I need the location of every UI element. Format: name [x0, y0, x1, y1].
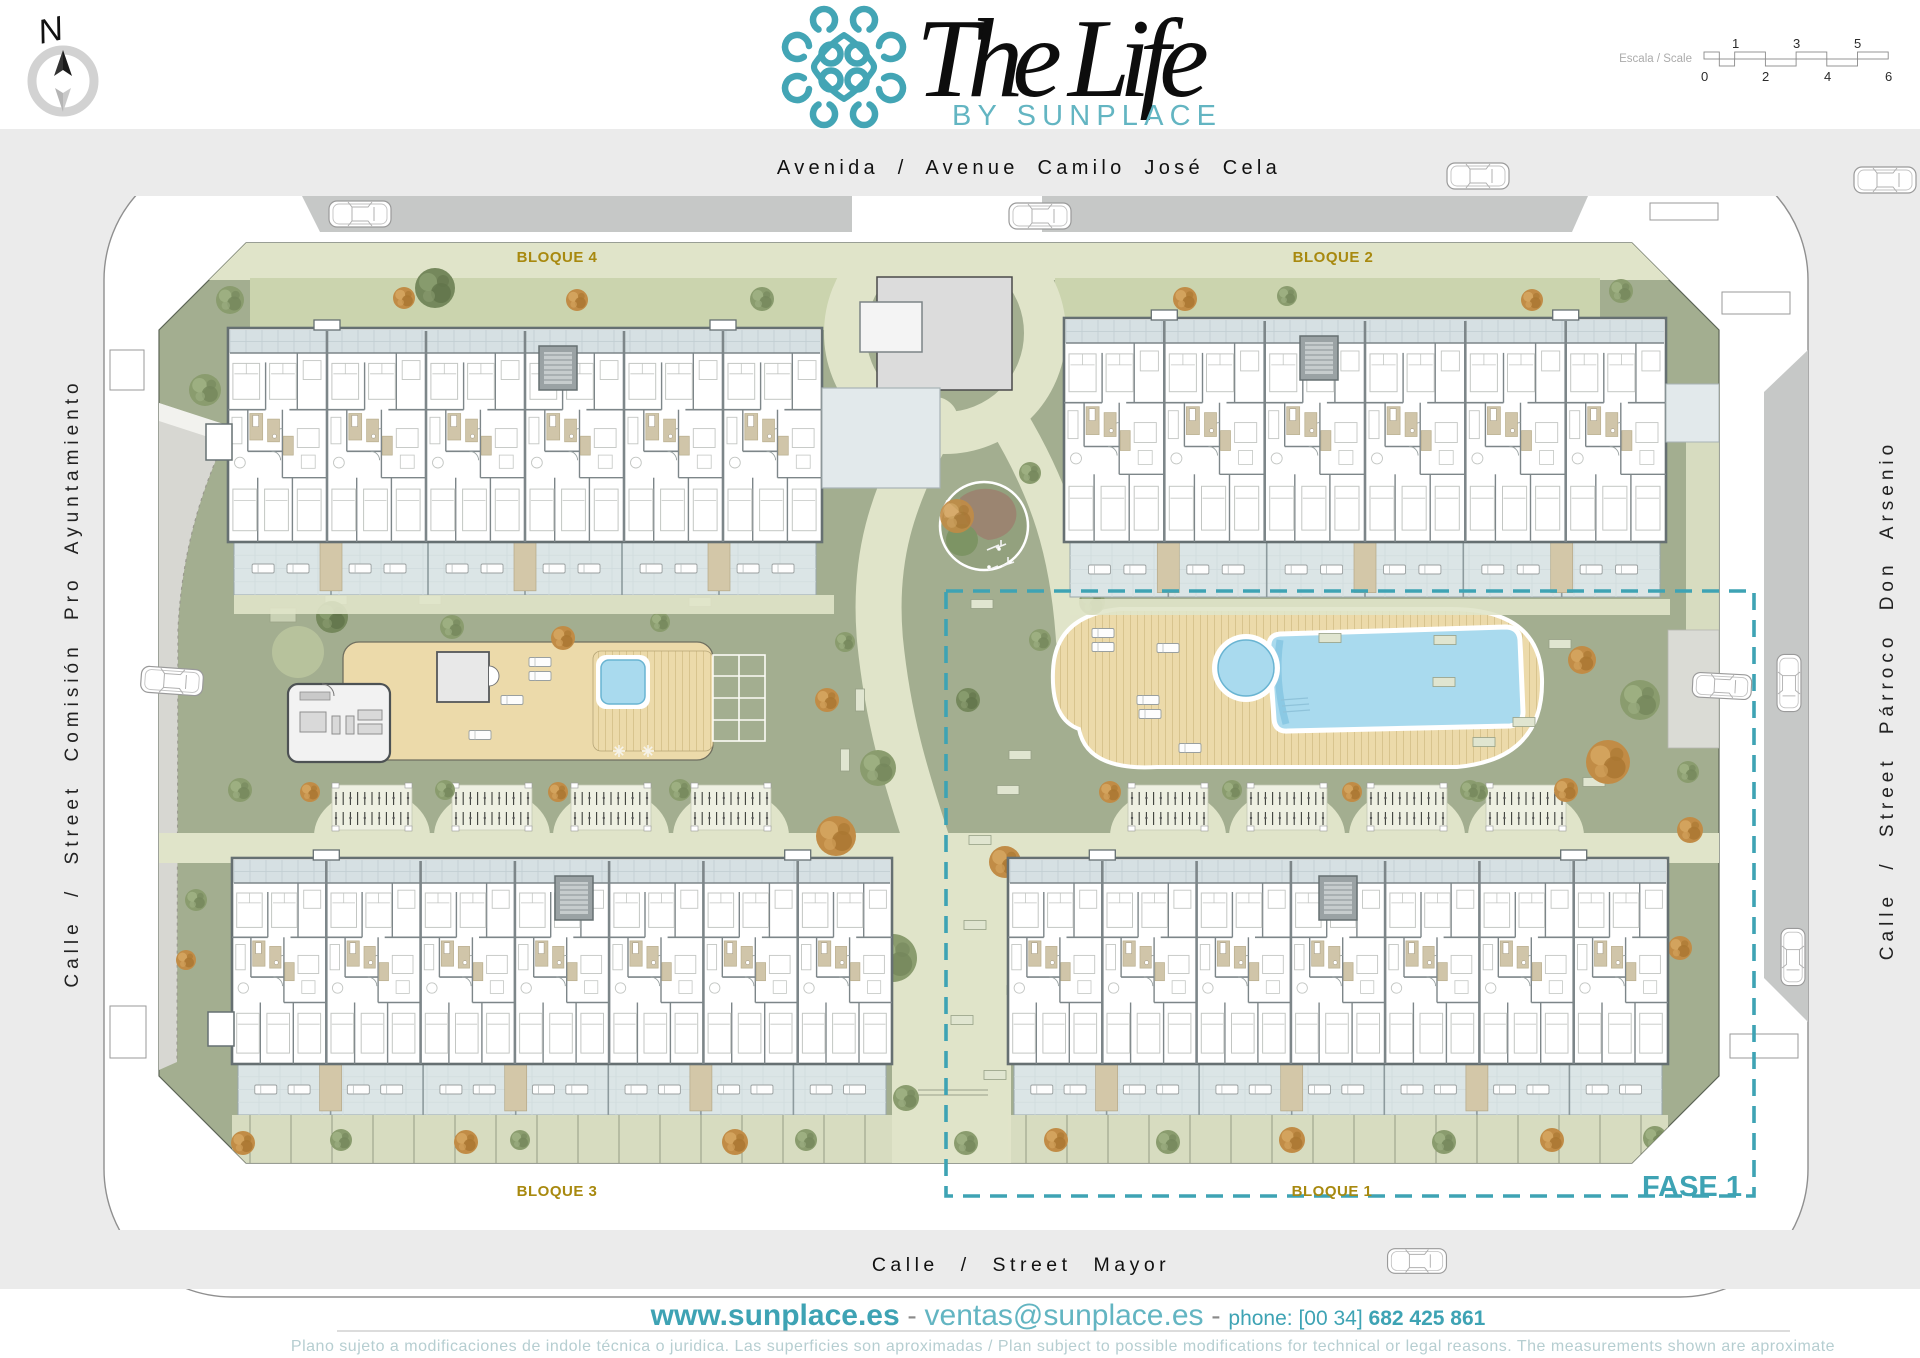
svg-text:Calle / Street Párroco Don Ars: Calle / Street Párroco Don Arsenio: [1877, 440, 1898, 960]
svg-text:Calle / Street Comisión Pro Ay: Calle / Street Comisión Pro Ayuntamiento: [62, 378, 83, 987]
svg-text:FASE 1: FASE 1: [1642, 1171, 1742, 1203]
svg-text:BLOQUE 3: BLOQUE 3: [517, 1183, 598, 1200]
svg-text:Plano sujeto a modificaciones: Plano sujeto a modificaciones de indole …: [291, 1338, 1835, 1355]
svg-text:3: 3: [1793, 36, 1800, 51]
svg-text:4: 4: [1824, 69, 1831, 84]
svg-text:BLOQUE 1: BLOQUE 1: [1292, 1183, 1373, 1200]
svg-text:Calle / Street Mayor: Calle / Street Mayor: [872, 1254, 1170, 1276]
svg-text:1: 1: [1732, 36, 1739, 51]
svg-text:5: 5: [1854, 36, 1861, 51]
svg-text:Avenida / Avenue Camilo José C: Avenida / Avenue Camilo José Cela: [777, 157, 1281, 179]
svg-text:2: 2: [1762, 69, 1769, 84]
svg-text:6: 6: [1885, 69, 1892, 84]
svg-text:Escala / Scale: Escala / Scale: [1619, 53, 1692, 65]
svg-text:BLOQUE 2: BLOQUE 2: [1293, 249, 1374, 266]
svg-text:BLOQUE 4: BLOQUE 4: [517, 249, 598, 266]
svg-text:0: 0: [1701, 69, 1708, 84]
svg-text:BY SUNPLACE: BY SUNPLACE: [952, 100, 1216, 132]
